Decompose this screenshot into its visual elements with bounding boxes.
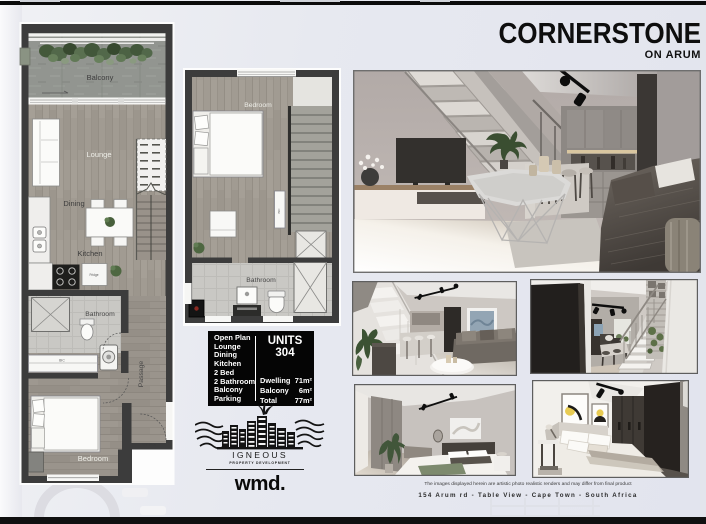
- svg-text:Bathroom: Bathroom: [85, 311, 115, 318]
- svg-text:BIC: BIC: [277, 208, 281, 214]
- svg-text:Lounge: Lounge: [86, 150, 111, 159]
- svg-text:Bedroom: Bedroom: [78, 454, 108, 463]
- svg-text:Bedroom: Bedroom: [244, 102, 272, 109]
- svg-text:Entrance: Entrance: [142, 443, 156, 447]
- svg-text:BIC: BIC: [59, 359, 65, 363]
- svg-text:Passage: Passage: [138, 361, 145, 388]
- svg-text:Dining: Dining: [63, 199, 84, 208]
- svg-text:Balcony: Balcony: [87, 73, 114, 82]
- svg-text:Fridge: Fridge: [89, 273, 98, 277]
- svg-text:Kitchen: Kitchen: [77, 249, 102, 258]
- svg-text:Bathroom: Bathroom: [246, 277, 276, 284]
